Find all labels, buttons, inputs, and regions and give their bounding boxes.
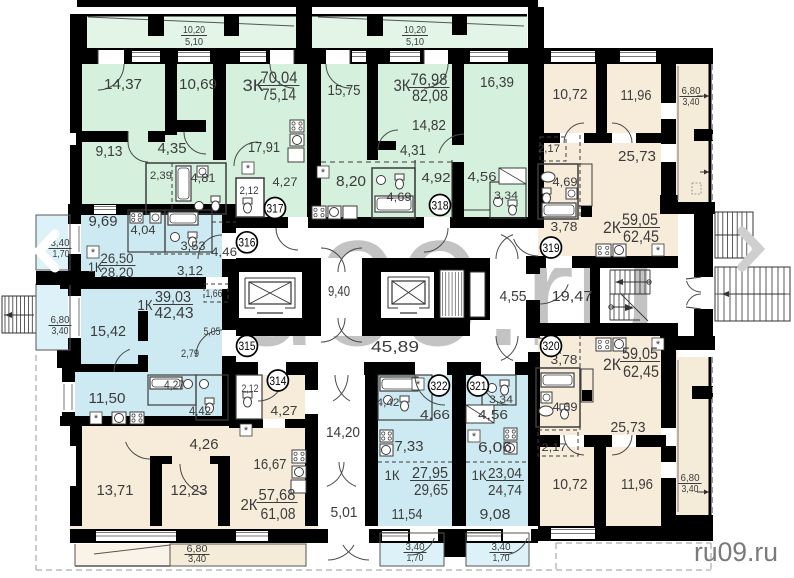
svg-text:9,40: 9,40 — [328, 283, 350, 300]
svg-text:2,12: 2,12 — [242, 383, 259, 395]
svg-text:*: * — [91, 247, 96, 259]
svg-text:4,42: 4,42 — [377, 397, 400, 409]
svg-text:2,79: 2,79 — [181, 348, 199, 360]
svg-text:4,69: 4,69 — [387, 190, 412, 204]
svg-text:1К: 1К — [385, 467, 401, 483]
svg-text:9,08: 9,08 — [480, 506, 511, 523]
svg-text:6,06: 6,06 — [478, 439, 512, 456]
svg-text:*: * — [656, 245, 661, 257]
svg-text:25,73: 25,73 — [611, 419, 646, 436]
svg-text:12,23: 12,23 — [171, 482, 208, 499]
svg-text:*: * — [246, 163, 251, 175]
svg-text:1К: 1К — [138, 297, 153, 314]
svg-text:4,46: 4,46 — [211, 245, 237, 259]
svg-text:6,80: 6,80 — [681, 473, 700, 484]
svg-text:10,69: 10,69 — [179, 76, 217, 93]
svg-text:321: 321 — [470, 379, 487, 393]
svg-text:319: 319 — [543, 241, 560, 255]
svg-text:2К: 2К — [603, 355, 621, 374]
svg-text:3,40: 3,40 — [188, 554, 206, 565]
svg-text:42,43: 42,43 — [155, 305, 194, 322]
svg-text:61,08: 61,08 — [261, 506, 296, 523]
svg-text:17,91: 17,91 — [248, 139, 280, 156]
svg-text:6,80: 6,80 — [51, 315, 70, 326]
svg-text:11,96: 11,96 — [621, 87, 652, 104]
svg-text:4,27: 4,27 — [271, 403, 298, 418]
svg-text:2К: 2К — [241, 497, 259, 514]
svg-text:9,13: 9,13 — [96, 143, 123, 160]
svg-text:45,89: 45,89 — [371, 339, 419, 356]
svg-text:4,04: 4,04 — [131, 223, 156, 237]
svg-text:4,56: 4,56 — [478, 407, 508, 422]
svg-text:4,66: 4,66 — [420, 407, 450, 422]
svg-text:62,45: 62,45 — [623, 362, 659, 381]
svg-text:316: 316 — [238, 236, 255, 250]
svg-text:3,53: 3,53 — [181, 239, 206, 253]
svg-text:318: 318 — [432, 198, 449, 212]
svg-text:39,03: 39,03 — [155, 289, 191, 306]
svg-text:4,81: 4,81 — [191, 171, 216, 185]
svg-text:4,42: 4,42 — [189, 404, 211, 418]
svg-text:10,72: 10,72 — [553, 476, 588, 493]
svg-text:*: * — [244, 425, 249, 437]
svg-text:3,34: 3,34 — [494, 190, 518, 202]
svg-text:19,47: 19,47 — [552, 288, 593, 305]
svg-text:4,31: 4,31 — [400, 142, 426, 159]
svg-text:82,08: 82,08 — [412, 86, 448, 105]
svg-text:14,20: 14,20 — [326, 424, 360, 441]
svg-text:1,70: 1,70 — [493, 553, 510, 564]
svg-text:10,72: 10,72 — [553, 86, 588, 103]
svg-text:16,67: 16,67 — [254, 456, 287, 473]
svg-text:27,95: 27,95 — [412, 465, 448, 482]
svg-text:4,27: 4,27 — [273, 175, 298, 189]
svg-text:11,50: 11,50 — [89, 390, 126, 407]
svg-text:11,96: 11,96 — [621, 476, 653, 493]
svg-text:5,10: 5,10 — [406, 37, 424, 48]
svg-text:2,39: 2,39 — [150, 170, 172, 182]
svg-text:23,04: 23,04 — [488, 465, 522, 482]
svg-text:29,65: 29,65 — [414, 482, 448, 499]
svg-text:4,56: 4,56 — [468, 169, 497, 184]
svg-text:320: 320 — [543, 339, 560, 353]
svg-text:3,78: 3,78 — [551, 219, 578, 234]
svg-text:315: 315 — [239, 339, 256, 353]
svg-text:24,74: 24,74 — [488, 482, 522, 499]
svg-text:3,40: 3,40 — [406, 542, 425, 553]
svg-text:314: 314 — [269, 374, 286, 388]
svg-text:6,80: 6,80 — [682, 86, 701, 97]
svg-text:11,54: 11,54 — [392, 506, 423, 523]
svg-text:62,45: 62,45 — [623, 227, 659, 246]
svg-text:57,68: 57,68 — [259, 487, 296, 504]
svg-text:10,20: 10,20 — [183, 25, 205, 36]
svg-text:2,17: 2,17 — [538, 143, 560, 155]
svg-text:10,20: 10,20 — [404, 25, 426, 36]
svg-text:14,82: 14,82 — [412, 117, 446, 134]
svg-text:15,75: 15,75 — [328, 82, 361, 99]
svg-text:1,70: 1,70 — [407, 553, 424, 564]
svg-text:4,55: 4,55 — [500, 288, 527, 305]
svg-text:59,05: 59,05 — [622, 344, 658, 363]
svg-text:13,71: 13,71 — [97, 482, 134, 499]
svg-text:4,69: 4,69 — [553, 175, 578, 189]
svg-text:*: * — [94, 413, 99, 425]
svg-text:317: 317 — [267, 201, 284, 215]
svg-text:25,73: 25,73 — [618, 148, 656, 165]
svg-text:14,37: 14,37 — [104, 76, 142, 93]
svg-text:1,66: 1,66 — [206, 288, 223, 300]
svg-text:3,40: 3,40 — [52, 326, 69, 337]
svg-text:75,14: 75,14 — [262, 85, 296, 104]
svg-text:28,20: 28,20 — [101, 264, 134, 280]
svg-text:2,12: 2,12 — [240, 185, 259, 197]
svg-text:8,20: 8,20 — [336, 173, 366, 190]
svg-text:ru09.ru: ru09.ru — [694, 537, 778, 567]
svg-text:16,39: 16,39 — [480, 74, 514, 91]
svg-text:3,40: 3,40 — [683, 97, 700, 108]
svg-text:7,33: 7,33 — [395, 438, 424, 455]
svg-text:15,42: 15,42 — [90, 323, 126, 340]
svg-text:1,70: 1,70 — [53, 249, 70, 260]
svg-text:4,26: 4,26 — [190, 436, 219, 453]
svg-text:3,34: 3,34 — [489, 394, 513, 406]
svg-text:322: 322 — [431, 379, 448, 393]
svg-text:4,92: 4,92 — [422, 170, 451, 185]
svg-text:3,40: 3,40 — [682, 484, 699, 495]
svg-text:*: * — [472, 431, 477, 443]
svg-text:5,05: 5,05 — [204, 326, 221, 338]
svg-text:4,35: 4,35 — [158, 140, 187, 157]
svg-text:3,40: 3,40 — [492, 542, 511, 553]
svg-text:3,12: 3,12 — [177, 263, 203, 278]
svg-text:1К: 1К — [472, 467, 488, 483]
svg-text:2К: 2К — [603, 218, 621, 237]
svg-text:*: * — [321, 167, 326, 179]
svg-text:3К: 3К — [394, 76, 411, 95]
svg-text:5,01: 5,01 — [331, 504, 358, 521]
svg-text:2,17: 2,17 — [542, 442, 567, 454]
svg-text:4,27: 4,27 — [164, 378, 184, 392]
svg-text:4,69: 4,69 — [553, 400, 578, 414]
svg-text:5,10: 5,10 — [185, 37, 203, 48]
svg-text:9,69: 9,69 — [89, 213, 118, 230]
